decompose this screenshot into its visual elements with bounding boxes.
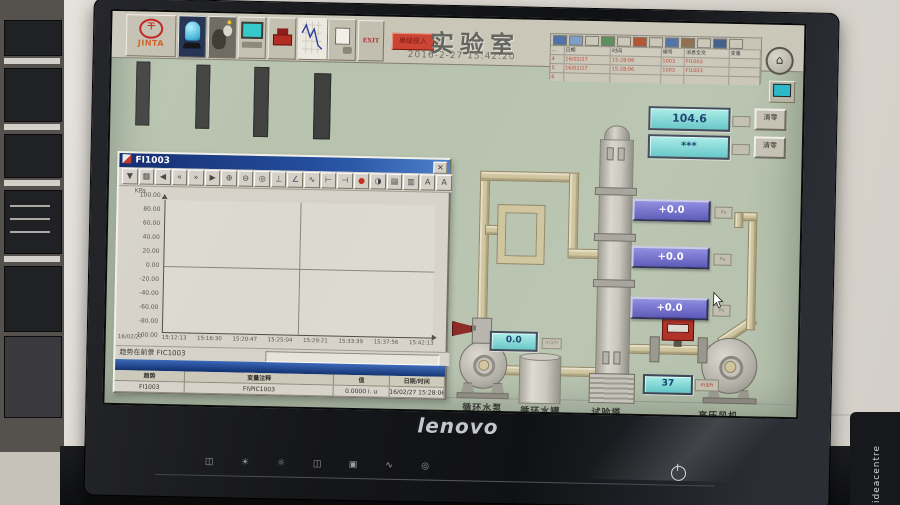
top-header-pipe: [480, 171, 579, 183]
pressure-display-3: +0.0: [630, 297, 708, 321]
osd-button-row: ◫☀☼◫▣∿◎: [203, 457, 543, 474]
alarm-lock-icon[interactable]: [713, 38, 727, 48]
alarm-lamp-icon: [184, 21, 199, 40]
last-record-icon[interactable]: ▶: [205, 170, 221, 186]
test-tower[interactable]: [595, 139, 634, 378]
font-large-icon[interactable]: A: [420, 174, 436, 190]
forward-icon[interactable]: »: [188, 169, 204, 185]
x-axis-tick: 15:37:56: [374, 339, 399, 346]
rack-label-strip: [4, 124, 60, 130]
totalizer-unit-1: [732, 116, 750, 127]
alarm-var-cell: [729, 68, 760, 77]
rack-module: [4, 20, 62, 56]
alarm-list-icon[interactable]: [585, 36, 599, 46]
save-icon[interactable]: ▦: [138, 168, 154, 184]
rack-label-strip: [4, 58, 60, 64]
alarm-lamp-button[interactable]: [178, 15, 207, 58]
alarm-date-cell: [564, 73, 611, 82]
alarm-ack-icon[interactable]: [553, 35, 567, 45]
trend-window-title: FI1003: [135, 155, 170, 166]
trend-window-icon: [122, 154, 131, 163]
alarm-id-cell: 1003: [661, 57, 685, 65]
rack-label-strip: [4, 180, 60, 186]
pressure-unit-1: Pa: [714, 207, 732, 219]
alarm-ack-all-icon[interactable]: [569, 35, 583, 45]
y-axis-tick: 0.00: [146, 263, 159, 269]
photo-scene: ideacentre 干 JINTA: [0, 0, 900, 505]
x-axis-tick: 15:20:47: [232, 336, 257, 343]
x-axis-tick: 15:12:13: [162, 335, 187, 342]
x-axis-tick: 15:42:13: [409, 340, 434, 347]
tower-base: [588, 373, 635, 404]
alarm-var-cell: [729, 59, 760, 68]
trend-icon: [299, 19, 326, 58]
y-axis-ticks: 100.0080.0060.0040.0020.000.00-20.00-40.…: [116, 192, 161, 339]
ruler-icon[interactable]: ∠: [287, 172, 303, 188]
zoom-in-icon[interactable]: ⊕: [221, 170, 237, 186]
air-flow-unit: m3/h: [695, 379, 719, 391]
alarm-table-body: 416/02/2715:28:061003FI1003516/02/2715:2…: [550, 54, 761, 85]
pressure-display-1: +0.0: [632, 199, 710, 223]
x-axis-tick: 15:29:21: [303, 338, 328, 345]
trend-plot-area[interactable]: [162, 200, 436, 339]
exit-button[interactable]: EXIT: [358, 20, 385, 62]
font-small-icon[interactable]: A: [436, 175, 452, 191]
seal-loop-pipe: [497, 205, 544, 264]
flow-meter-display: [667, 324, 689, 333]
range-start-icon[interactable]: ⊢: [320, 172, 336, 188]
workstation-mini-button[interactable]: [769, 81, 795, 104]
alarm-time-cell: 15:28:06: [611, 56, 662, 65]
x-axis-tick: 15:25:04: [268, 337, 293, 344]
alarm-stop-icon[interactable]: [633, 37, 647, 47]
pump-riser-pipe: [477, 171, 491, 339]
zoom-out-icon[interactable]: ⊖: [238, 171, 254, 187]
bar-indicator: [313, 73, 331, 139]
curve-select-icon[interactable]: ∿: [304, 172, 320, 188]
alarm-text-cell: [684, 76, 729, 85]
pump-label: 循环水泵: [452, 400, 512, 414]
close-icon[interactable]: ×: [433, 162, 447, 174]
alarm-date-cell: 16/02/27: [564, 55, 611, 64]
pause-icon[interactable]: ◑: [370, 173, 386, 189]
alarm-row-number: 5: [550, 64, 564, 72]
bar-indicator: [253, 67, 269, 137]
rack-module: [4, 68, 62, 122]
menu-icon[interactable]: ▣: [347, 460, 359, 470]
hmi-screen: 干 JINTA: [102, 9, 806, 419]
alarm-text-cell: FI1003: [685, 58, 730, 67]
datetime-text: 2016-2-27 15:42:20: [408, 50, 558, 63]
trend-window[interactable]: FI1003 × ▼▦◀«»▶⊕⊖◎⊥∠∿⊢⊣●◑▤▥AA KPa 100.00…: [113, 151, 452, 400]
rack-module: [4, 336, 62, 418]
pressure-unit-2: Pa: [713, 254, 731, 266]
x-axis-tick: 15:33:39: [338, 339, 363, 346]
alarm-help-icon[interactable]: [697, 38, 711, 48]
rack-label-strip: [4, 256, 60, 262]
monitor-icon: [773, 84, 791, 97]
alarm-row-number: 6: [550, 73, 564, 81]
tower-feed-downpipe: [567, 172, 579, 258]
operator-login-button[interactable]: [208, 16, 237, 59]
alarm-ok-icon[interactable]: [601, 36, 615, 46]
auto-adjust-icon[interactable]: ∿: [383, 461, 395, 471]
rewind-icon[interactable]: «: [172, 169, 188, 185]
clear-button-2[interactable]: 清零: [754, 136, 786, 159]
y-axis-tick: 100.00: [140, 192, 161, 198]
trend-button[interactable]: [298, 18, 329, 61]
alarm-log-icon[interactable]: [681, 38, 695, 48]
y-axis-tick: -40.00: [139, 290, 158, 296]
x-axis-tick: 15:16:30: [197, 336, 222, 343]
brightness-down-icon[interactable]: ☼: [275, 458, 287, 468]
totalizer-display-1: 104.6: [648, 106, 730, 132]
rack-module: [4, 266, 62, 332]
cascade-entry-button[interactable]: 串级投入: [392, 33, 434, 51]
zoom-reset-icon[interactable]: ◎: [254, 171, 270, 187]
alarm-print-icon[interactable]: [617, 36, 631, 46]
lenovo-logo: lenovo: [368, 412, 548, 440]
image-mode-icon[interactable]: ◫: [311, 459, 323, 469]
alarm-archive-icon[interactable]: [665, 37, 679, 47]
y-axis-tick: 60.00: [143, 221, 160, 227]
air-flow-display: 37: [643, 374, 693, 395]
report-button[interactable]: [328, 18, 357, 61]
bar-indicator: [135, 61, 150, 125]
bezel-reflection: [586, 409, 833, 483]
grid-icon[interactable]: ▤: [387, 174, 403, 190]
y-axis-tick: -20.00: [140, 276, 159, 282]
jinta-logo-text: JINTA: [127, 38, 175, 48]
stop-icon[interactable]: ●: [354, 173, 370, 189]
pressure-display-2: +0.0: [631, 246, 709, 270]
alarm-var-cell: [729, 77, 760, 86]
alarm-time-cell: 15:28:06: [611, 65, 662, 74]
alarm-filter-icon[interactable]: [649, 37, 663, 47]
legend-icon[interactable]: ▥: [403, 174, 419, 190]
alarm-id-cell: 1003: [661, 66, 685, 74]
brightness-up-icon[interactable]: ☀: [239, 458, 251, 468]
clear-button-1[interactable]: 清零: [754, 108, 786, 131]
alarm-text-cell: FI1003: [685, 67, 730, 76]
y-axis-tick: 20.00: [142, 249, 159, 255]
y-axis-tick: -80.00: [139, 318, 158, 324]
ideacentre-label: ideacentre: [872, 445, 882, 503]
exhaust-riser-pipe: [746, 212, 757, 330]
pin-icon[interactable]: ▼: [122, 168, 138, 184]
bar-indicator: [195, 65, 210, 129]
workstation-button[interactable]: [238, 17, 267, 60]
alarm-row-number: 4: [551, 55, 565, 63]
valve-actuator-icon: [452, 321, 472, 336]
totalizer-display-2: ***: [648, 134, 730, 160]
rack-module: [4, 134, 62, 178]
alarm-date-cell: 16/02/27: [564, 64, 611, 73]
workstation-icon: [241, 22, 263, 39]
equipment-rack: [0, 0, 64, 505]
totalizer-unit-2: [732, 144, 750, 155]
axis-icon[interactable]: ⊥: [271, 171, 287, 187]
y-axis-tick: -60.00: [139, 304, 158, 310]
print-button[interactable]: [268, 17, 297, 60]
alarm-panel: ... 日期 时间 编号 消息全文 变量 416/02/2715:28:0610…: [549, 33, 762, 83]
monitor: 干 JINTA: [83, 0, 839, 505]
x-axis-date: 16/02/27: [118, 334, 162, 341]
alarm-time-cell: [610, 74, 661, 83]
y-axis-tick: 40.00: [143, 235, 160, 241]
pump-flow-unit: m3/h: [542, 338, 562, 349]
circulating-tank[interactable]: [518, 355, 561, 404]
y-axis-arrow: [162, 194, 168, 199]
alarm-info-icon[interactable]: [729, 39, 743, 49]
pump-flow-display: 0.0: [490, 331, 538, 352]
alarm-id-cell: [661, 75, 685, 83]
range-end-icon[interactable]: ⊣: [337, 173, 353, 189]
exhaust-outlet-pipe: [734, 212, 743, 228]
y-axis-tick: 80.00: [143, 207, 160, 213]
exit-osd-icon[interactable]: ◎: [419, 461, 431, 471]
jinta-emblem-icon: 干: [139, 18, 163, 38]
first-record-icon[interactable]: ◀: [155, 169, 171, 185]
rack-module: [4, 190, 62, 254]
mouse-cursor: [712, 292, 724, 310]
report-icon: [334, 28, 349, 45]
jinta-logo: 干 JINTA: [126, 14, 177, 57]
input-source-icon[interactable]: ◫: [203, 457, 215, 467]
